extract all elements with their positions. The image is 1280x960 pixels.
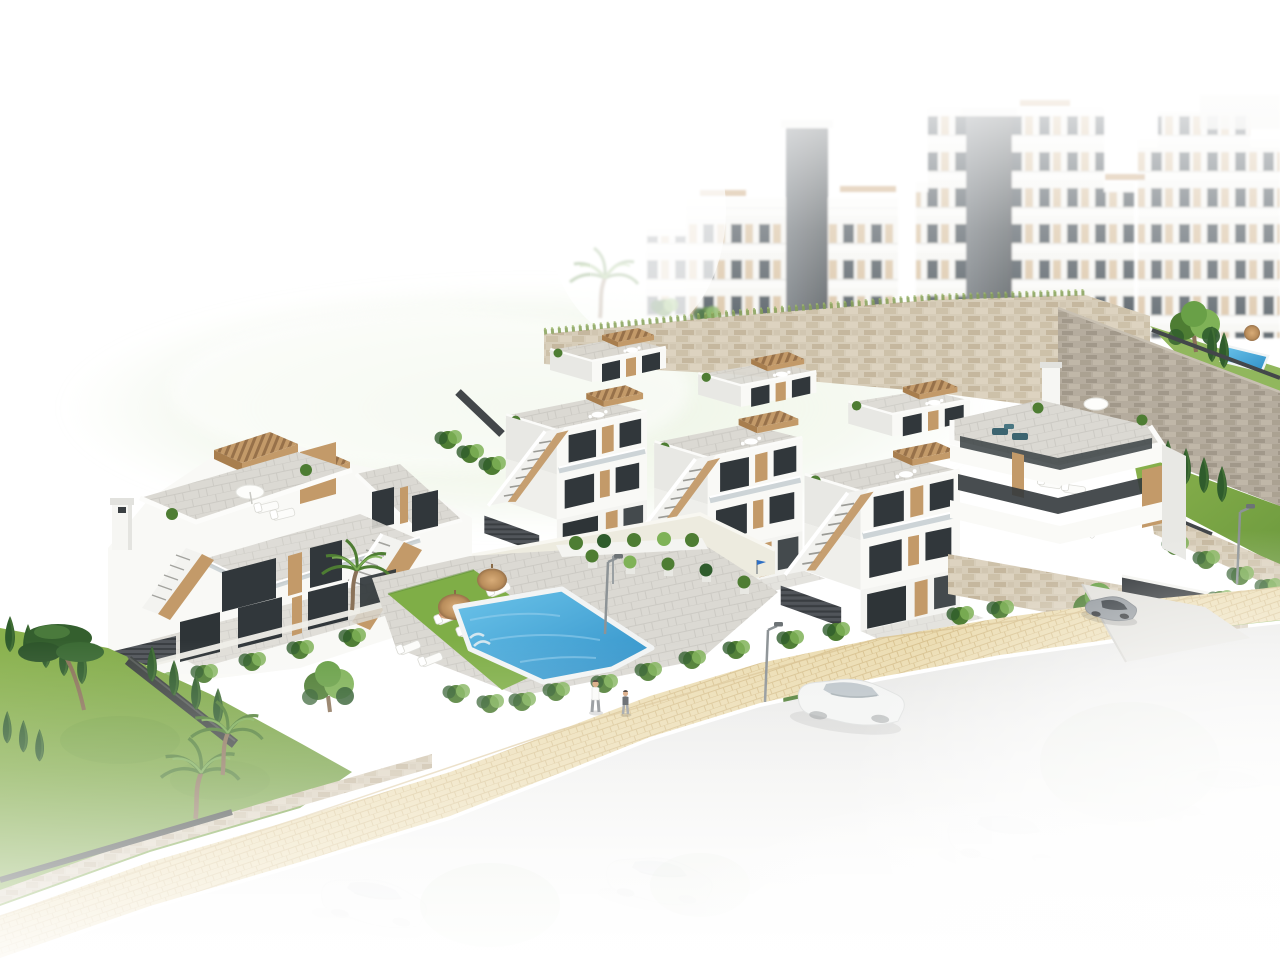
parasol-umbrella <box>1084 398 1108 410</box>
render-canvas <box>0 0 1280 960</box>
architectural-render <box>0 0 1280 960</box>
parasol-umbrella <box>1244 325 1260 341</box>
